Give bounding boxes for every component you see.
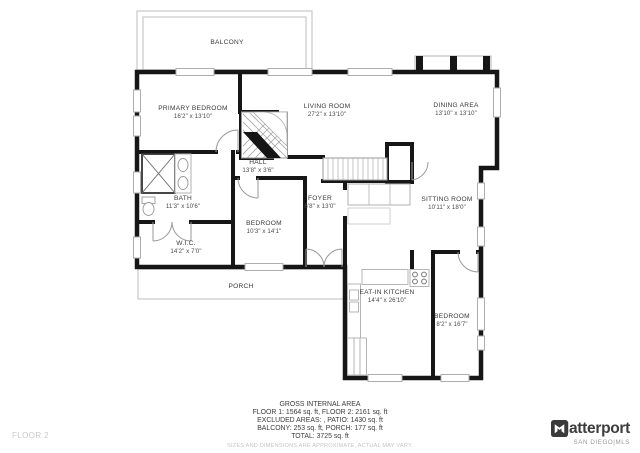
floor-plan-page: BALCONY PRIMARY BEDROOM 16'2" x 13'10" L… (0, 0, 640, 453)
area-summary: GROSS INTERNAL AREA FLOOR 1: 1564 sq. ft… (160, 401, 480, 451)
floor-label: FLOOR 2 (12, 431, 49, 440)
bay-window (415, 56, 491, 72)
room-labels: BALCONY PRIMARY BEDROOM 16'2" x 13'10" L… (158, 39, 479, 328)
room-label-primary-bedroom: PRIMARY BEDROOM (158, 105, 227, 112)
room-label-sitting-room: SITTING ROOM (421, 196, 472, 203)
room-label-foyer: FOYER (308, 195, 332, 202)
room-label-dining-area: DINING AREA (433, 102, 479, 109)
floor-plan-canvas: BALCONY PRIMARY BEDROOM 16'2" x 13'10" L… (0, 0, 640, 453)
room-label-hall: HALL (249, 159, 267, 166)
summary-line: FLOOR 1: 1564 sq. ft, FLOOR 2: 2161 sq. … (160, 409, 480, 417)
room-dims-sitting-room: 10'11" x 18'0" (428, 204, 466, 211)
room-dims-primary-bedroom: 16'2" x 13'10" (174, 113, 212, 120)
room-label-kitchen: EAT-IN KITCHEN (359, 289, 414, 296)
room-label-bath: BATH (174, 195, 192, 202)
room-dims-bedroom-mid: 10'3" x 14'1" (247, 228, 282, 235)
summary-disclaimer: SIZES AND DIMENSIONS ARE APPROXIMATE, AC… (160, 442, 480, 450)
room-label-bedroom-br: BEDROOM (434, 313, 470, 320)
kitchen-fixtures (348, 270, 430, 376)
room-label-porch: PORCH (228, 283, 253, 290)
room-label-living-room: LIVING ROOM (304, 103, 351, 110)
room-dims-hall: 13'8" x 3'6" (242, 167, 273, 174)
room-dims-bedroom-br: 8'2" x 16'7" (436, 321, 467, 328)
room-dims-wic: 14'2" x 7'0" (170, 248, 201, 255)
summary-line: EXCLUDED AREAS: , PATIO: 1430 sq. ft (160, 417, 480, 425)
summary-line: BALCONY: 253 sq. ft, PORCH: 177 sq. ft (160, 425, 480, 433)
room-label-balcony: BALCONY (210, 39, 244, 46)
room-label-bedroom-mid: BEDROOM (246, 220, 282, 227)
matterport-logo: Matterport SAN DIEGO|MLS (551, 420, 630, 446)
room-dims-foyer: 6'8" x 13'0" (304, 203, 335, 210)
room-dims-living-room: 27'2" x 13'10" (308, 111, 346, 118)
room-dims-bath: 11'3" x 10'6" (166, 203, 200, 210)
brand-subtitle: SAN DIEGO|MLS (573, 439, 630, 446)
room-label-wic: W.I.C. (176, 240, 195, 247)
summary-title: GROSS INTERNAL AREA (160, 401, 480, 409)
room-dims-kitchen: 14'4" x 26'10" (368, 297, 406, 304)
room-dims-dining-area: 13'10" x 13'10" (435, 110, 477, 117)
summary-line: TOTAL: 3725 sq. ft (160, 433, 480, 441)
